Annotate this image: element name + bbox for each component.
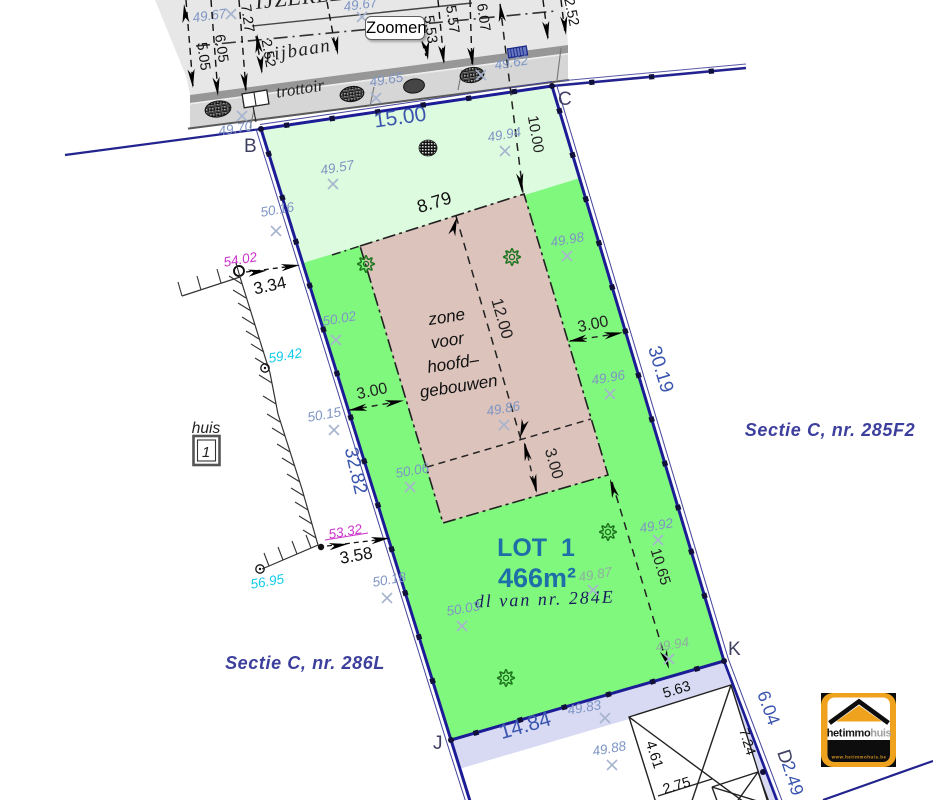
svg-text:C: C bbox=[558, 89, 572, 110]
svg-text:huis: huis bbox=[192, 420, 221, 437]
svg-text:Sectie C, nr. 285F2: Sectie C, nr. 285F2 bbox=[745, 420, 915, 440]
svg-text:Sectie C, nr. 286L: Sectie C, nr. 286L bbox=[225, 653, 385, 673]
svg-text:www.hetimmohuis.be: www.hetimmohuis.be bbox=[831, 755, 887, 760]
svg-text:B: B bbox=[244, 136, 257, 157]
svg-text:1: 1 bbox=[202, 444, 210, 461]
svg-text:K: K bbox=[728, 639, 741, 660]
svg-text:J: J bbox=[433, 733, 443, 754]
svg-text:het immohuis: het immohuis bbox=[827, 728, 892, 740]
svg-text:LOT 1: LOT 1 bbox=[497, 534, 575, 562]
